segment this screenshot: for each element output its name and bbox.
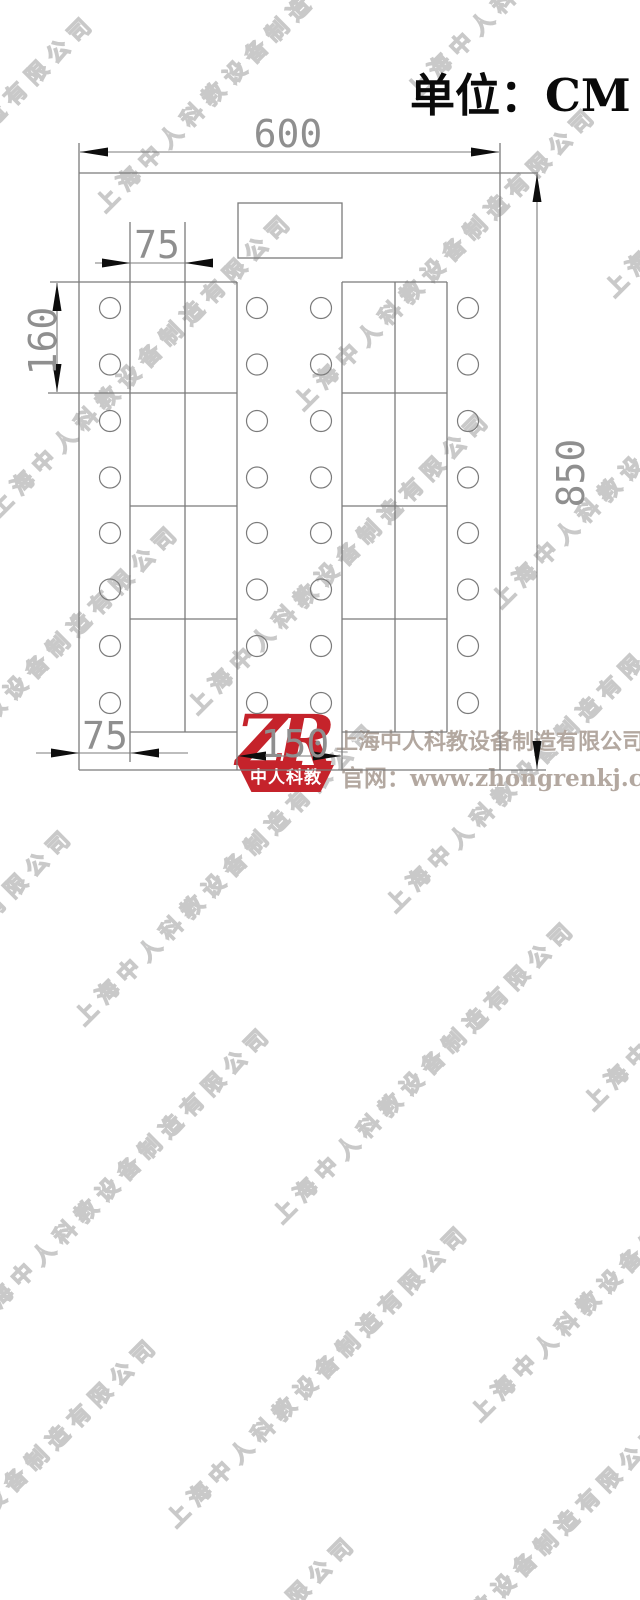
dim-label-top-left-width: 75 [127, 226, 187, 264]
dim-label-bottom-center-width: 150 [255, 725, 335, 763]
frame-outline [48, 143, 546, 770]
hole-circle [311, 579, 332, 600]
hole-circle [311, 693, 332, 714]
hole-circle [311, 523, 332, 544]
unit-title: 单位：CM [410, 70, 631, 122]
dim-label-overall-width: 600 [248, 115, 328, 153]
dim-label-left-section-height: 160 [24, 291, 62, 391]
hole-circle [100, 411, 121, 432]
hole-circle [100, 298, 121, 319]
hole-circle [100, 579, 121, 600]
dim-label-bottom-left-width: 75 [75, 717, 135, 755]
dimension-lines [36, 152, 537, 769]
dim-label-overall-height: 850 [552, 423, 590, 523]
hole-circle [100, 467, 121, 488]
hole-circle [100, 693, 121, 714]
hole-circle [247, 693, 268, 714]
dimension-arrowheads [51, 148, 542, 770]
hole-circle [100, 636, 121, 657]
hole-circle [247, 354, 268, 375]
hole-circle [311, 298, 332, 319]
hole-circle [458, 579, 479, 600]
hole-circle [458, 354, 479, 375]
hole-circle [311, 636, 332, 657]
hole-circle [458, 523, 479, 544]
hole-circle [458, 298, 479, 319]
hole-circle [247, 298, 268, 319]
hole-circle [311, 354, 332, 375]
hole-circle [100, 523, 121, 544]
hole-circle [247, 523, 268, 544]
hole-circle [311, 467, 332, 488]
hole-circle [458, 636, 479, 657]
hole-circle [311, 411, 332, 432]
hole-circle [458, 693, 479, 714]
hole-circle [458, 467, 479, 488]
cad-sheet: { "title": { "unit_label": "单位：CM" }, "d… [0, 0, 640, 800]
hole-circle [247, 467, 268, 488]
hole-circle [247, 411, 268, 432]
hole-circle [247, 579, 268, 600]
hole-circle [100, 354, 121, 375]
hole-circle [247, 636, 268, 657]
hole-circle [458, 411, 479, 432]
